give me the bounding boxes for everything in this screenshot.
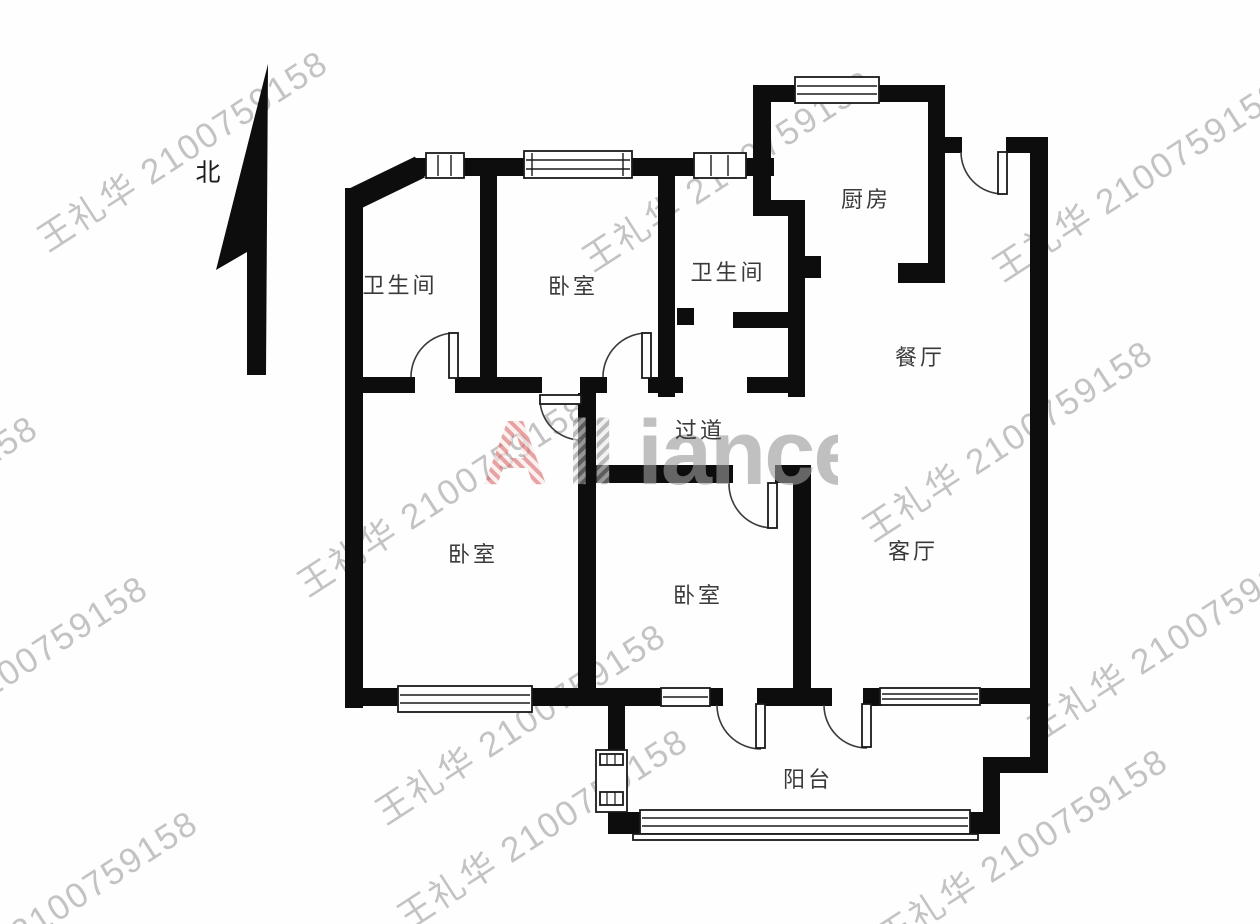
room-label-dining-room: 餐厅 xyxy=(895,340,945,372)
room-label-layer: 卫生间 卧室 卫生间 厨房 餐厅 过道 卧室 卧室 客厅 阳台 xyxy=(0,0,1260,924)
room-label-bathroom-2: 卫生间 xyxy=(690,255,765,287)
room-label-bedroom-middle: 卧室 xyxy=(673,578,723,610)
room-label-balcony: 阳台 xyxy=(783,762,833,794)
room-label-kitchen: 厨房 xyxy=(841,182,891,214)
room-label-living-room: 客厅 xyxy=(888,534,938,566)
room-label-bathroom-1: 卫生间 xyxy=(362,268,437,300)
room-label-bedroom-left: 卧室 xyxy=(448,537,498,569)
room-label-bedroom-top: 卧室 xyxy=(548,269,598,301)
room-label-hallway: 过道 xyxy=(675,413,725,445)
floorplan-canvas: 王礼华 2100759158 王礼华 2100759158 王礼华 210075… xyxy=(0,0,1260,924)
